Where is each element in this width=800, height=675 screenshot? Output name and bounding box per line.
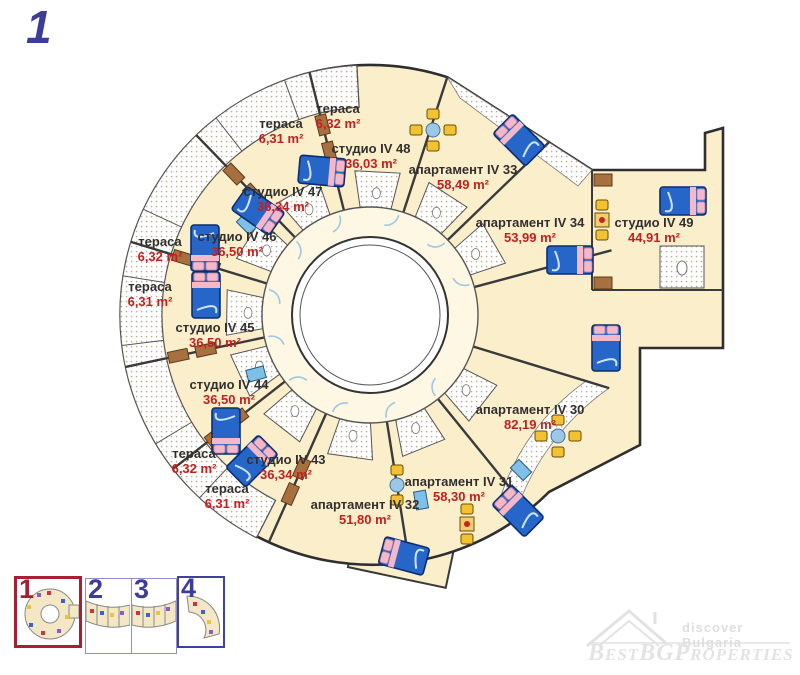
bed-icon [192, 272, 220, 318]
table-icon [390, 465, 404, 505]
bed-icon [660, 187, 706, 215]
courtyard [262, 207, 478, 423]
floor-plan-page: 1 [0, 0, 800, 675]
thumbnail-3-number: 3 [134, 574, 149, 605]
thumbnail-section-3[interactable]: 3 [131, 578, 177, 654]
thumbnail-1-number: 1 [19, 574, 34, 605]
thumbnail-2-number: 2 [88, 574, 103, 605]
thumbnail-section-2[interactable]: 2 [85, 578, 131, 654]
thumbnail-4-number: 4 [181, 573, 196, 604]
table-icon [460, 504, 474, 544]
toilet-icon [677, 261, 687, 275]
thumbnail-section-1[interactable]: 1 [14, 576, 82, 648]
table-icon [595, 200, 609, 240]
bed-icon [212, 408, 240, 454]
bed-icon [592, 325, 620, 371]
bed-icon [191, 225, 219, 271]
section-thumbnails: 1 2 3 4 [14, 574, 234, 658]
thumbnail-section-4[interactable]: 4 [177, 576, 225, 648]
bed-icon [547, 246, 593, 274]
bed-icon [298, 155, 346, 187]
